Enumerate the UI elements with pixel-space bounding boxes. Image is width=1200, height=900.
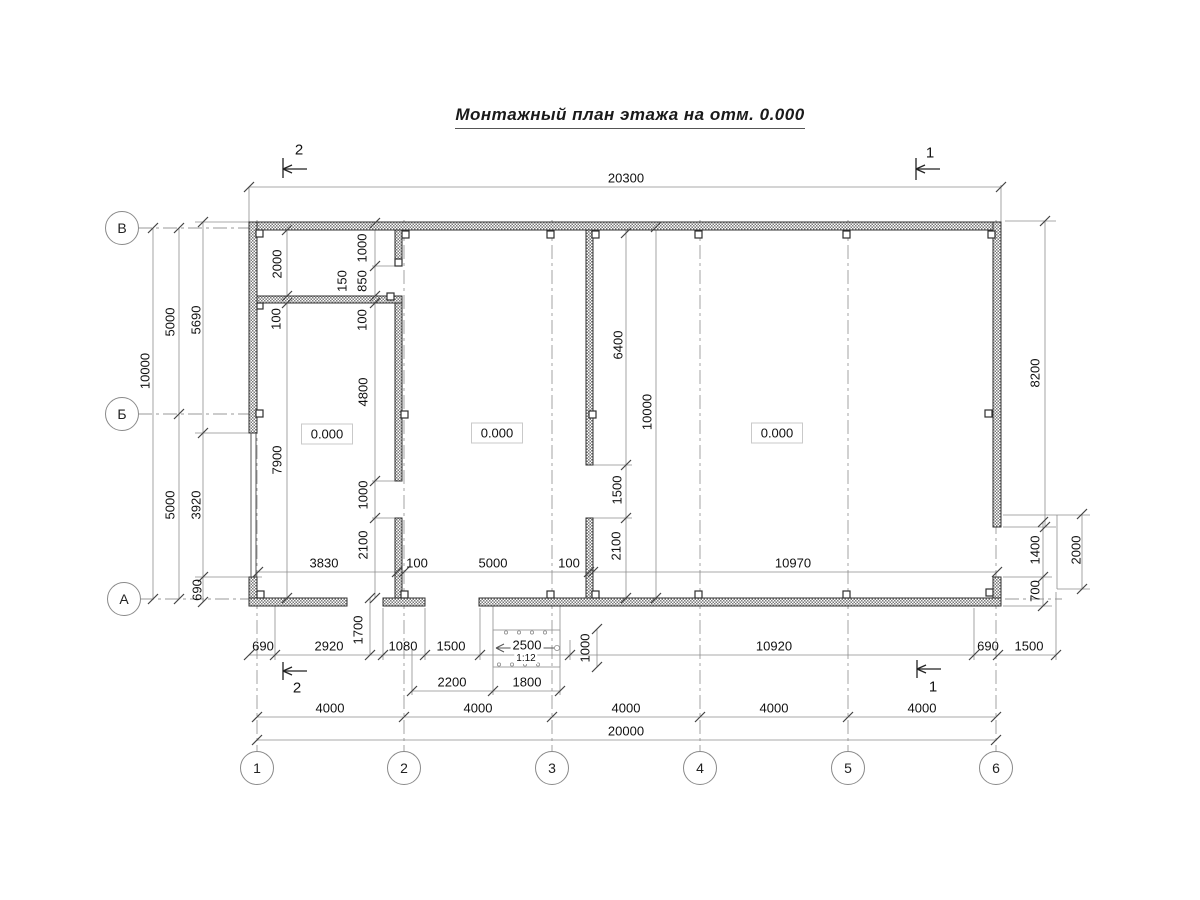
section-mark-label: 1	[926, 146, 934, 161]
axis-circle-col-4: 4	[683, 751, 717, 785]
dim-label: 4000	[464, 702, 493, 715]
dim-label: 1500	[611, 476, 624, 505]
drawing-title: Монтажный план этажа на отм. 0.000	[455, 105, 805, 129]
floor-plan-sheet: Монтажный план этажа на отм. 0.000 20300…	[0, 0, 1200, 900]
dim-label: 2100	[357, 531, 370, 560]
dim-label: 690	[252, 640, 274, 653]
axis-circle-col-3: 3	[535, 751, 569, 785]
dim-label: 100	[270, 308, 283, 330]
dim-label: 5000	[164, 491, 177, 520]
dim-label: 690	[977, 640, 999, 653]
dim-label: 4000	[316, 702, 345, 715]
axis-circle-col-2: 2	[387, 751, 421, 785]
dim-label: 4000	[908, 702, 937, 715]
dim-label: 1500	[437, 640, 466, 653]
dim-label: 10000	[139, 353, 152, 389]
dim-label: 8200	[1029, 359, 1042, 388]
dim-label: 1400	[1029, 536, 1042, 565]
dim-label: 5000	[164, 308, 177, 337]
dim-label: 10000	[641, 394, 654, 430]
dim-label: 5000	[479, 557, 508, 570]
dim-label: 4000	[612, 702, 641, 715]
dim-label: 1:12	[514, 654, 537, 664]
dimension-ticks	[148, 182, 1087, 745]
dim-label: 1000	[357, 481, 370, 510]
room-elevation-label: 0.000	[471, 423, 523, 444]
dim-label: 10920	[756, 640, 792, 653]
dim-label: 4000	[760, 702, 789, 715]
section-mark-label: 2	[295, 143, 303, 158]
dim-label: 7900	[271, 446, 284, 475]
dim-label: 690	[191, 579, 204, 601]
dim-label: 2500	[511, 639, 544, 652]
dim-label: 1800	[513, 676, 542, 689]
dim-label: 1700	[352, 616, 365, 645]
axis-circle-row-Б: Б	[105, 397, 139, 431]
axis-circle-row-В: В	[105, 211, 139, 245]
dim-label: 2000	[271, 250, 284, 279]
dim-label: 100	[406, 557, 428, 570]
dim-label: 700	[1029, 580, 1042, 602]
axis-circle-col-6: 6	[979, 751, 1013, 785]
axis-circle-col-5: 5	[831, 751, 865, 785]
dim-label: 3920	[190, 491, 203, 520]
dim-label: 850	[356, 270, 369, 292]
dim-label: 1080	[389, 640, 418, 653]
section-mark-label: 2	[293, 681, 301, 696]
axis-circle-col-1: 1	[240, 751, 274, 785]
dim-label: 20000	[608, 725, 644, 738]
dim-label: 10970	[775, 557, 811, 570]
dim-label: 2000	[1070, 536, 1083, 565]
dim-label: 100	[356, 309, 369, 331]
dim-label: 6400	[612, 331, 625, 360]
axis-circle-row-А: А	[107, 582, 141, 616]
dim-label: 100	[558, 557, 580, 570]
room-elevation-label: 0.000	[301, 424, 353, 445]
dim-label: 3830	[310, 557, 339, 570]
room-elevation-label: 0.000	[751, 423, 803, 444]
dim-label: 1500	[1015, 640, 1044, 653]
dim-label: 2100	[610, 532, 623, 561]
dim-label: 5690	[190, 306, 203, 335]
dim-label: 20300	[608, 172, 644, 185]
dim-label: 150	[336, 270, 349, 292]
dimension-lines	[153, 185, 1090, 740]
dim-label: 2920	[315, 640, 344, 653]
floor-plan-drawing	[0, 0, 1200, 900]
dim-label: 4800	[357, 378, 370, 407]
window-opening	[251, 433, 256, 577]
dim-label: 1000	[579, 634, 592, 663]
section-mark-label: 1	[929, 680, 937, 695]
dim-label: 1000	[356, 234, 369, 263]
dim-label: 2200	[438, 676, 467, 689]
